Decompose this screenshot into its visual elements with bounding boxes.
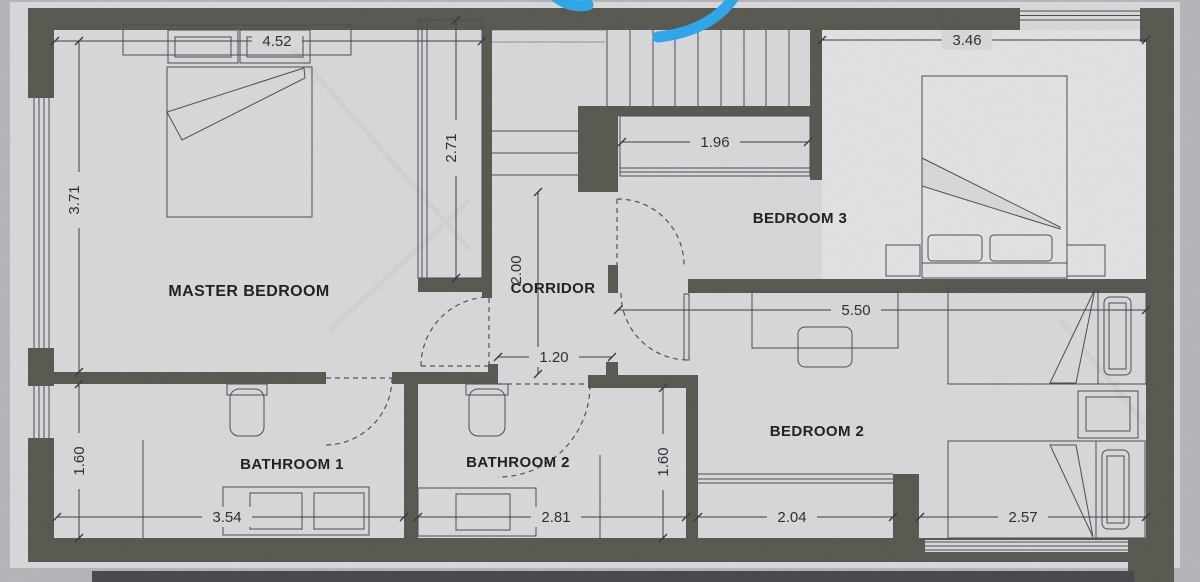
scan-grain-overlay [0, 0, 1200, 582]
floor-plan-drawing: 4.52 3.71 2.71 2.00 1.20 1.96 3.46 5.50 … [0, 0, 1200, 582]
floor-plan-scan: 4.52 3.71 2.71 2.00 1.20 1.96 3.46 5.50 … [0, 0, 1200, 582]
